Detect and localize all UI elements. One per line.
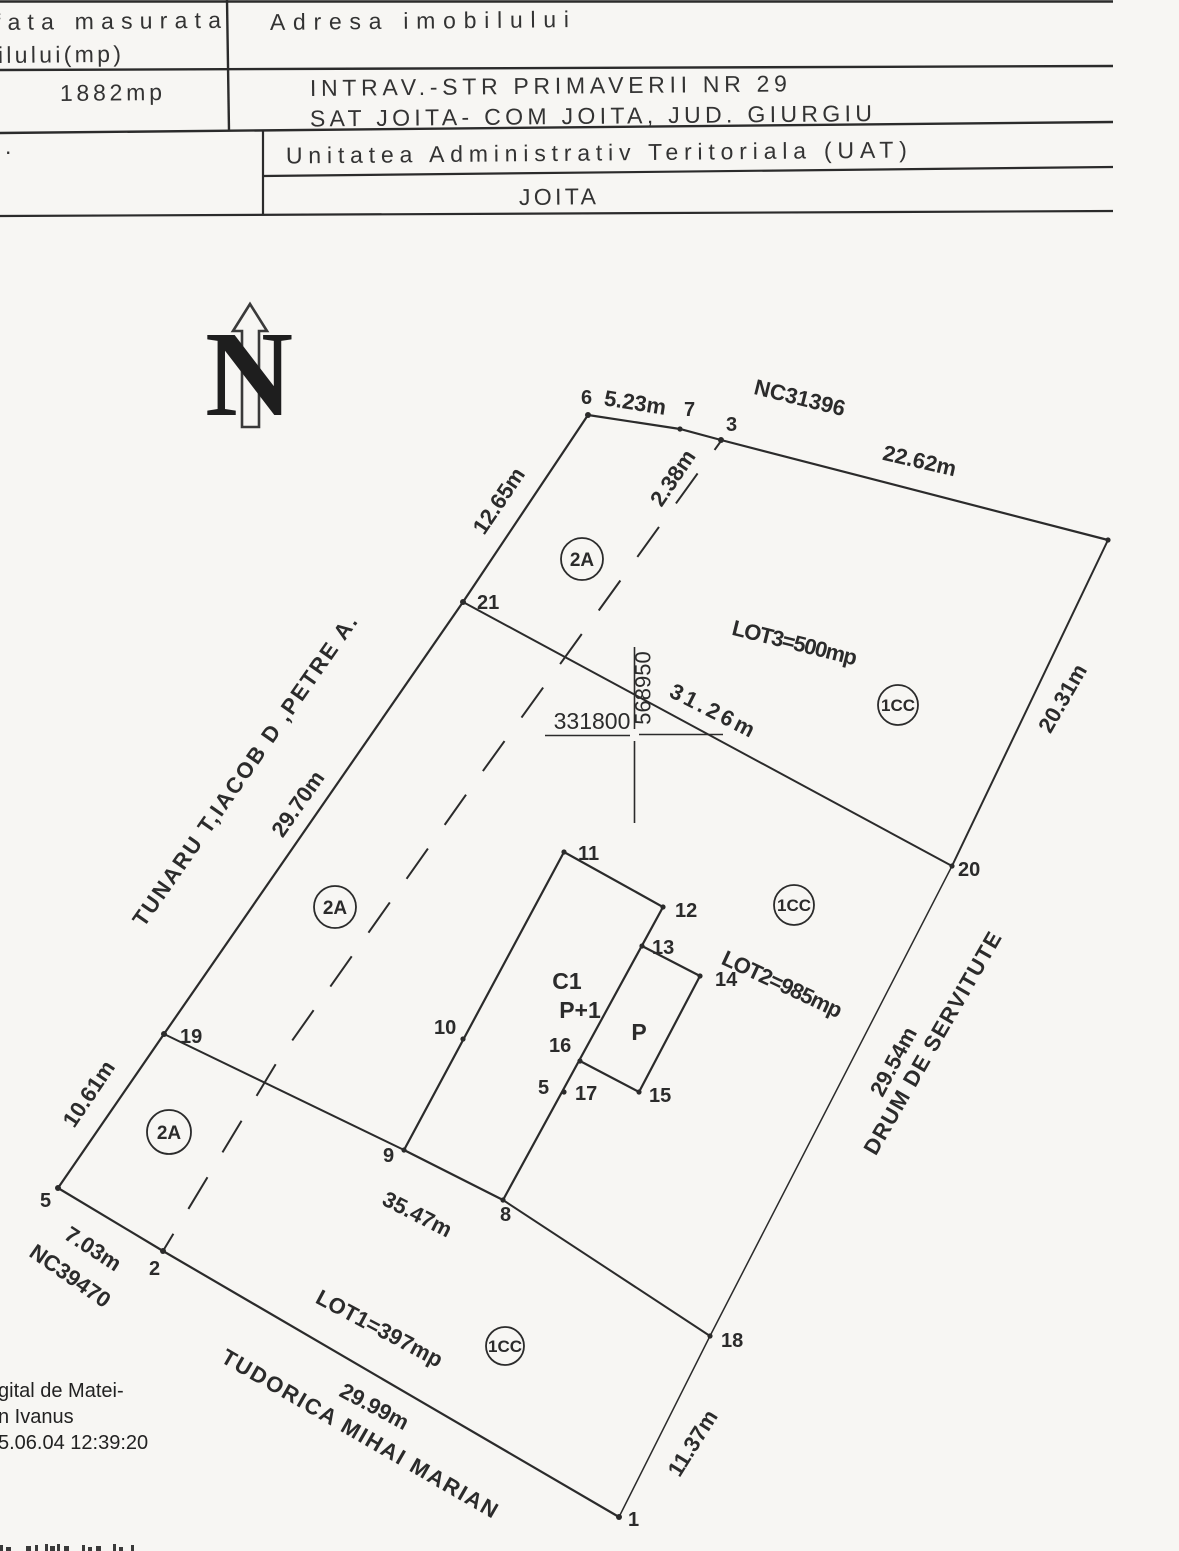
svg-text:8: 8 bbox=[500, 1204, 511, 1226]
svg-text:6: 6 bbox=[581, 387, 592, 409]
svg-text:18: 18 bbox=[721, 1330, 743, 1352]
svg-text:5: 5 bbox=[538, 1077, 549, 1099]
svg-text:568950: 568950 bbox=[631, 651, 656, 724]
svg-text:1: 1 bbox=[628, 1509, 639, 1531]
svg-text:JOITA: JOITA bbox=[519, 183, 597, 210]
svg-text:21: 21 bbox=[477, 592, 499, 614]
svg-text:17: 17 bbox=[575, 1083, 597, 1105]
svg-text:2A: 2A bbox=[323, 898, 348, 919]
svg-text:2: 2 bbox=[149, 1258, 160, 1280]
svg-text:N: N bbox=[205, 307, 293, 442]
svg-text:16: 16 bbox=[549, 1035, 571, 1057]
svg-text:20: 20 bbox=[958, 859, 980, 881]
svg-text:331800: 331800 bbox=[554, 708, 631, 734]
svg-text:12: 12 bbox=[675, 900, 697, 922]
svg-text:13: 13 bbox=[652, 937, 674, 959]
svg-text:3: 3 bbox=[726, 414, 737, 436]
svg-text:2A: 2A bbox=[157, 1123, 182, 1144]
svg-text:10: 10 bbox=[434, 1017, 456, 1039]
svg-text:7: 7 bbox=[684, 399, 695, 421]
svg-text:1CC: 1CC bbox=[777, 896, 811, 915]
svg-text:5.06.04 12:39:20: 5.06.04 12:39:20 bbox=[0, 1432, 148, 1454]
svg-text:19: 19 bbox=[180, 1026, 202, 1048]
svg-text:C1: C1 bbox=[552, 968, 582, 994]
svg-text:.: . bbox=[5, 133, 12, 159]
svg-text:11: 11 bbox=[578, 843, 599, 865]
svg-text:ilului(mp): ilului(mp) bbox=[0, 41, 122, 68]
svg-text:2A: 2A bbox=[570, 550, 595, 571]
svg-text:gital de Matei-: gital de Matei- bbox=[0, 1380, 124, 1402]
svg-text:P: P bbox=[631, 1019, 646, 1045]
svg-text:9: 9 bbox=[383, 1145, 394, 1167]
svg-text:1CC: 1CC bbox=[488, 1337, 522, 1356]
svg-text:5: 5 bbox=[40, 1190, 51, 1212]
svg-text:15: 15 bbox=[649, 1085, 671, 1107]
svg-text:P+1: P+1 bbox=[559, 997, 601, 1023]
svg-text:1CC: 1CC bbox=[881, 696, 915, 715]
svg-text:n Ivanus: n Ivanus bbox=[0, 1406, 74, 1428]
svg-text:SAT JOITA- COM JOITA, JUD. GIU: SAT JOITA- COM JOITA, JUD. GIURGIU bbox=[310, 100, 873, 131]
